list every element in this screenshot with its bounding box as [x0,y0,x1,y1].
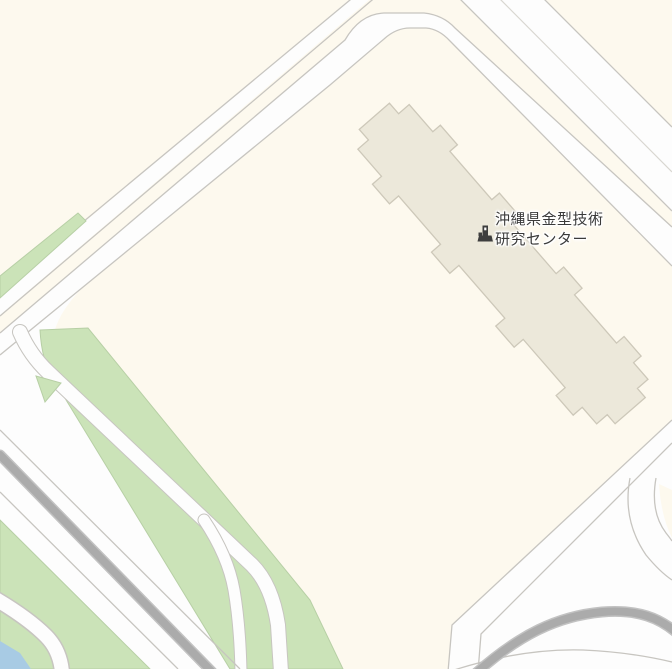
poi-label-line2: 研究センター [495,230,604,250]
map-tile [0,0,672,669]
poi-label-line1: 沖縄県金型技術 [495,210,604,230]
poi-label[interactable]: 沖縄県金型技術 研究センター [495,210,604,250]
map-canvas[interactable]: 沖縄県金型技術 研究センター [0,0,672,669]
